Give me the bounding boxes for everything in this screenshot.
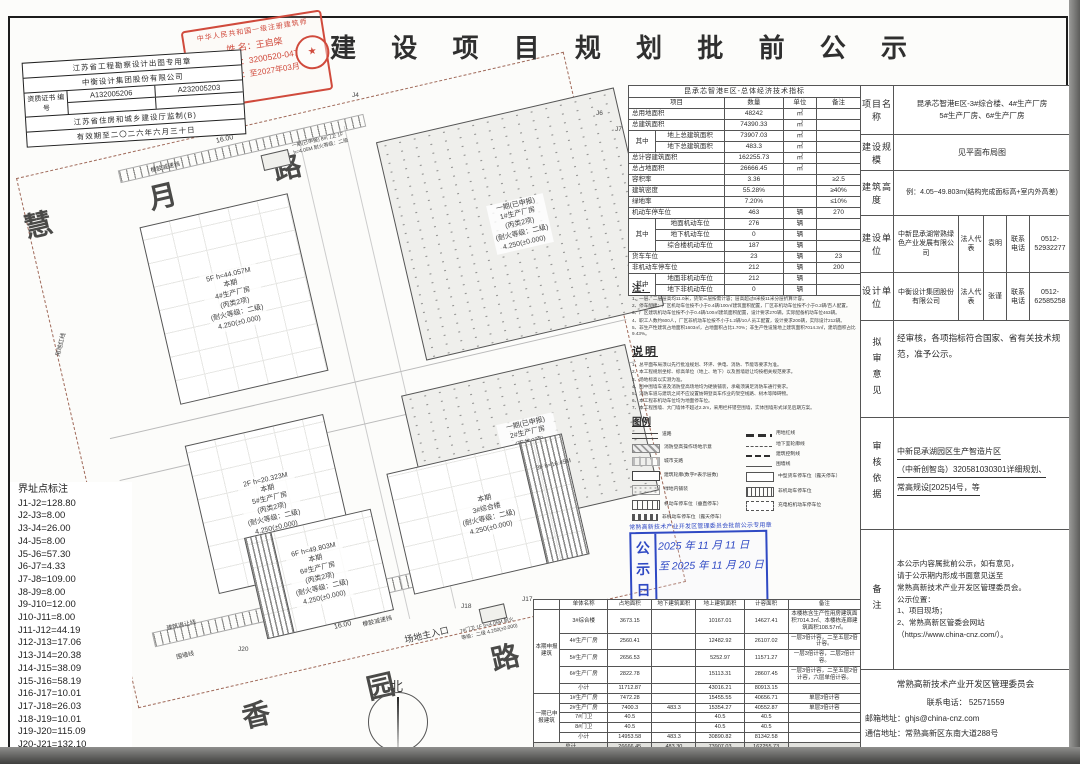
coord-item: J6-J7=4.33 <box>18 561 132 574</box>
row-label: 建筑密度 <box>629 186 725 197</box>
unit-name: 小计 <box>560 733 608 743</box>
north-arrow-icon <box>368 692 428 752</box>
remark <box>817 131 861 142</box>
legend-label: 机动车停车位（垂直停车） <box>664 502 722 508</box>
scan-edge-bottom <box>0 747 1080 764</box>
project-name-row: 项目名称 昆承芯智港E区-3#综合楼、4#生产厂房 5#生产厂房、6#生产厂房 <box>861 86 1070 135</box>
value: 11712.87 <box>608 683 652 693</box>
footer-mail: 邮箱地址：ghjs@china-cnz.com <box>865 711 1066 726</box>
col-header: 备注 <box>788 600 860 610</box>
designer-row: 设计单位 中衡设计集团股份有限公司 法人代表 张谨 联系电话 0512-6258… <box>861 273 1070 322</box>
description-line: 3、场地标高以实测为准。 <box>632 377 860 383</box>
height-label: 建筑高度 <box>861 171 894 215</box>
coords-title: 界址点标注 <box>18 484 132 497</box>
basis-value: 中新昆承湖园区生产智造片区（中新创智岛）320581030301详细规划、常高规… <box>894 418 1070 529</box>
row-label: 地面机动车位 <box>656 219 725 230</box>
value: 483.3 <box>652 703 696 713</box>
value: 40552.87 <box>744 703 788 713</box>
legend-item: 充电桩机动车停车位 <box>746 501 860 511</box>
remark-line: 2、常熟高新区管委会网站 <box>897 617 985 629</box>
unit <box>783 197 816 208</box>
description-line: 1、总平面布局须以先行批准规划、环评、供电、消防、节能等要求为准。 <box>632 362 860 368</box>
builder-rep-label: 法人代表 <box>959 216 984 272</box>
jpoint-marker: J17 <box>522 596 532 603</box>
note-line: 1、一层、二层层高均11.0米，货架三层按需计容；层高超过8米按11米分层折算计… <box>632 296 860 302</box>
note-line: 3、厂区建筑机动车位按不小于0.4辆/100㎡建筑面积配置，设计要求270辆，实… <box>632 310 860 316</box>
remark <box>817 142 861 153</box>
value: 55.28% <box>725 186 784 197</box>
coord-item: J9-J10=12.00 <box>18 599 132 612</box>
value <box>652 609 696 633</box>
unit: 辆 <box>783 208 816 219</box>
value <box>652 723 696 733</box>
value: 15113.31 <box>696 667 744 684</box>
legend-item: 道路 <box>632 431 746 439</box>
scale-value: 见平面布局图 <box>894 135 1070 171</box>
description-title: 说明 <box>632 343 860 359</box>
value: 7.20% <box>725 197 784 208</box>
col-header: 占地面积 <box>608 600 652 610</box>
group-label: 本期申报建筑 <box>534 609 560 693</box>
fire-legend-icon <box>632 444 660 453</box>
designer-tel-label: 联系电话 <box>1007 273 1030 321</box>
legend-item: 围墙线 <box>746 462 860 468</box>
value: 14953.58 <box>608 733 652 743</box>
jpoint-marker: J18 <box>461 603 471 610</box>
col-header: 单体名称 <box>560 600 608 610</box>
value: 5252.97 <box>696 650 744 667</box>
legend-item: 用地红线 <box>746 431 860 437</box>
opinion-row: 拟审意见 经审核，各项指标符合国家、省有关技术规范，准予公示。 <box>861 321 1070 417</box>
unit: 辆 <box>783 219 816 230</box>
legend-label: 围墙线 <box>776 462 790 468</box>
note-line: 4、职工人数约600人，厂区非机动车位按不小于1.2辆/10人员工配置，设计要求… <box>632 318 860 324</box>
jpoint-marker: J20 <box>238 646 248 653</box>
unit: ㎡ <box>783 120 816 131</box>
legend-item: 建筑控制线 <box>746 452 860 458</box>
notes-block: 注： 1、一层、二层层高均11.0米，货架三层按需计容；层高超过8米按11米分层… <box>632 281 860 412</box>
value: 3673.15 <box>608 609 652 633</box>
legend-label: 道路 <box>662 432 672 438</box>
cert-label: 资质证书 编号 <box>25 91 69 117</box>
remark <box>817 120 861 131</box>
parking2-legend-icon <box>632 514 658 521</box>
legend-label: 建筑轮廓(数字F表示层数) <box>664 473 718 479</box>
row-label: 综合楼机动车位 <box>656 241 725 252</box>
col-header: 数量 <box>725 98 784 109</box>
value: 40656.71 <box>744 693 788 703</box>
scale-row: 建设规模 见平面布局图 <box>861 135 1070 172</box>
unit: ㎡ <box>783 153 816 164</box>
row-group-label: 其中 <box>629 219 656 252</box>
value: 40.5 <box>608 723 652 733</box>
value: 2656.53 <box>608 650 652 667</box>
basement-legend-icon <box>746 446 772 447</box>
design-firm-stamp: 江苏省工程勘察设计出图专用章 中衡设计集团股份有限公司 资质证书 编号 A132… <box>22 49 247 147</box>
scale-label: 建设规模 <box>861 135 894 171</box>
unit: 辆 <box>783 230 816 241</box>
remark <box>788 733 860 743</box>
legend-item: 城市支路 <box>632 457 746 466</box>
legend-item: 中型货车停车位（露天停车） <box>746 472 860 482</box>
remark-line: 请于公示期内形成书面意见送至 <box>897 570 1003 582</box>
unit-name: 1#生产厂房 <box>560 693 608 703</box>
builder-tel: 0512-52932277 <box>1030 216 1070 272</box>
value: 12482.92 <box>696 633 744 650</box>
coord-item: J5-J6=57.30 <box>18 549 132 562</box>
value: 30890.82 <box>696 733 744 743</box>
basis-line: （中新创智岛）320581030301详细规划、 <box>897 464 1046 478</box>
basis-line: 中新昆承湖园区生产智造片区 <box>897 446 1001 460</box>
coord-item: J16-J17=10.01 <box>18 688 132 701</box>
value: 7400.3 <box>608 703 652 713</box>
col-header: 地下建筑面积 <box>652 600 696 610</box>
project-name-value: 昆承芯智港E区-3#综合楼、4#生产厂房 5#生产厂房、6#生产厂房 <box>894 86 1070 134</box>
legend-item: 消防登高操作场地示意 <box>632 444 746 453</box>
truck-legend-icon <box>746 472 774 482</box>
height-row: 建筑高度 例：4.05~49.803m(结构完成面标高+室内外高差) <box>861 171 1070 216</box>
remark <box>817 241 861 252</box>
builder-name: 中新昆承湖常熟绿色产业发展有限公司 <box>894 216 959 272</box>
row-label: 总建筑面积 <box>629 120 725 131</box>
legend-item: 地下室轮廓线 <box>746 442 860 448</box>
legend-item: 非机动车停车位 <box>746 487 860 497</box>
jpoint-marker: J4 <box>352 92 359 99</box>
control-legend-icon <box>746 455 772 458</box>
notes-title: 注： <box>632 281 860 294</box>
legend-label: 用地红线 <box>776 431 795 437</box>
col-header: 项目 <box>629 98 725 109</box>
remark <box>788 683 860 693</box>
designer-tel: 0512-62585258 <box>1030 273 1070 321</box>
value: 276 <box>725 219 784 230</box>
value: 483.3 <box>652 733 696 743</box>
unit <box>783 175 816 186</box>
unit: 辆 <box>783 241 816 252</box>
remark <box>817 230 861 241</box>
value: 7472.28 <box>608 693 652 703</box>
fence-legend-icon <box>746 466 772 467</box>
builder-rep: 袁明 <box>984 216 1007 272</box>
value: 26666.45 <box>725 164 784 175</box>
unit <box>783 186 816 197</box>
coord-item: J8-J9=8.00 <box>18 587 132 600</box>
description-line: 4、图中围墙车道及消防登高场地均为硬质铺装，承载须满足消防车通行要求。 <box>632 384 860 390</box>
unit: ㎡ <box>783 142 816 153</box>
unit: 辆 <box>783 263 816 274</box>
row-label: 地下机动车位 <box>656 230 725 241</box>
note-line: 5、非生产性建筑占地面积1603㎡，占地面积占比1.70%；非生产性设施地上建筑… <box>632 325 860 337</box>
value: 15455.55 <box>696 693 744 703</box>
designer-label: 设计单位 <box>861 273 894 321</box>
charge-legend-icon <box>746 501 774 511</box>
designer-name: 中衡设计集团股份有限公司 <box>894 273 959 321</box>
coord-item: J10-J11=8.00 <box>18 612 132 625</box>
unit: 辆 <box>783 252 816 263</box>
designer-rep-label: 法人代表 <box>959 273 984 321</box>
coord-item: J18-J19=10.01 <box>18 714 132 727</box>
opinion-label: 拟审意见 <box>861 321 894 416</box>
unit-name: 3#综合楼 <box>560 609 608 633</box>
coord-item: J3-J4=26.00 <box>18 523 132 536</box>
coord-item: J11-J12=44.19 <box>18 625 132 638</box>
unit-name: 6#生产厂房 <box>560 667 608 684</box>
group-label: 一期已申报建筑 <box>534 693 560 742</box>
coord-item: J1-J2=128.80 <box>18 498 132 511</box>
parking-legend-icon <box>632 500 660 510</box>
remark-line: 1、项目现场； <box>897 605 947 617</box>
unit-name: 8#门卫 <box>560 723 608 733</box>
remark <box>817 219 861 230</box>
legend-label: 非机动车停车位（露天停车） <box>662 515 724 521</box>
legend-label: 充电桩机动车停车位 <box>778 503 821 509</box>
value: 80913.15 <box>744 683 788 693</box>
row-label: 总占地面积 <box>629 164 725 175</box>
row-label: 地上总建筑面积 <box>656 131 725 142</box>
remark-line: 本公示内容属批前公示，如有意见， <box>897 558 1019 570</box>
col-header: 地上建筑面积 <box>696 600 744 610</box>
legend-label: 非机动车停车位 <box>778 489 812 495</box>
value: 483.3 <box>725 142 784 153</box>
value: 11571.27 <box>744 650 788 667</box>
jpoint-marker: J7 <box>615 126 622 133</box>
value: 212 <box>725 263 784 274</box>
row-group-label: 其中 <box>629 131 656 153</box>
legend-label: 建筑控制线 <box>776 452 800 458</box>
remark: 一层3倍计容，二层2倍计容。 <box>788 650 860 667</box>
coord-item: J2-J3=8.00 <box>18 510 132 523</box>
remark: 单层3倍计容 <box>788 693 860 703</box>
remark-row: 备注 本公示内容属批前公示，如有意见，请于公示期内形成书面意见送至常熟高新技术产… <box>861 530 1070 670</box>
value: 23 <box>725 252 784 263</box>
unit: ㎡ <box>783 164 816 175</box>
redline-legend-icon <box>746 434 772 437</box>
value: 28607.45 <box>744 667 788 684</box>
remark-line: （https://www.china-cnz.com/）。 <box>897 629 1008 641</box>
legend-label: 消防登高操作场地示意 <box>664 445 712 451</box>
remark: 单层3倍计容 <box>788 703 860 713</box>
value: 187 <box>725 241 784 252</box>
col-header: 备注 <box>817 98 861 109</box>
coord-item: J13-J14=20.38 <box>18 650 132 663</box>
green-legend-icon <box>632 485 660 495</box>
legend-label: 绿地内铺装 <box>664 487 688 493</box>
remark: ≥40% <box>817 186 861 197</box>
remark: 一层3倍计容，二至五层2倍计容，六层单倍计容。 <box>788 667 860 684</box>
scan-edge-right <box>1069 0 1080 764</box>
legend-item: 机动车停车位（垂直停车） <box>632 500 746 510</box>
value: 40.5 <box>696 723 744 733</box>
row-label: 地下总建筑面积 <box>656 142 725 153</box>
row-label: 机动车停车位 <box>629 208 725 219</box>
project-name-label: 项目名称 <box>861 86 894 134</box>
coord-item: J12-J13=17.06 <box>18 637 132 650</box>
scanned-notice-page: 慧 月 路 香 园 路 场地次入口 16.00 橡胶减速挡 场地主入口 16.0… <box>0 0 1080 764</box>
row-label: 总用地面积 <box>629 109 725 120</box>
unit-name: 7#门卫 <box>560 713 608 723</box>
value: 40.5 <box>744 723 788 733</box>
value: 26107.02 <box>744 633 788 650</box>
legend-block: 图例 道路消防登高操作场地示意城市支路建筑轮廓(数字F表示层数)绿地内铺装机动车… <box>632 414 860 526</box>
economic-indicators-table: 昆承芯智港E区-总体经济技术指标项目数量单位备注总用地面积48242㎡总建筑面积… <box>628 85 861 296</box>
legend-label: 城市支路 <box>664 459 683 465</box>
footer-org: 常熟高新技术产业开发区管理委员会 <box>865 676 1066 692</box>
basis-line: 常高规设[2025]4号，等 <box>897 482 980 496</box>
corner <box>534 600 560 610</box>
remark-line: 常熟高新技术产业开发区管理委员会。 <box>897 582 1026 594</box>
value: 463 <box>725 208 784 219</box>
basis-row: 审核依据 中新昆承湖园区生产智造片区（中新创智岛）320581030301详细规… <box>861 418 1070 530</box>
row-label: 非机动车停车位 <box>629 263 725 274</box>
coord-item: J19-J20=115.09 <box>18 726 132 739</box>
builder-tel-label: 联系电话 <box>1007 216 1030 272</box>
remark <box>817 153 861 164</box>
city-legend-icon <box>632 457 660 466</box>
boundary-coordinates: 界址点标注 J1-J2=128.80J2-J3=8.00J3-J4=26.00J… <box>10 482 132 764</box>
remark: 本楼栋含生产性用房建筑面积7014.3㎡、本楼栋连廊建筑面积108.57㎡。 <box>788 609 860 633</box>
unit: ㎡ <box>783 109 816 120</box>
value: 40.5 <box>696 713 744 723</box>
value: 10167.01 <box>696 609 744 633</box>
legend-label: 地下室轮廓线 <box>776 442 805 448</box>
page-title: 建 设 项 目 规 划 批 前 公 示 <box>330 28 830 65</box>
col-header: 计容面积 <box>744 600 788 610</box>
remark <box>788 713 860 723</box>
value <box>652 650 696 667</box>
footer-addr: 通信地址：常熟高新区东南大道288号 <box>865 726 1066 741</box>
value: 15354.27 <box>696 703 744 713</box>
value: 2822.78 <box>608 667 652 684</box>
unit-areas-table: 单体名称占地面积地下建筑面积地上建筑面积计容面积备注本期申报建筑3#综合楼367… <box>533 599 861 753</box>
row-label: 绿地率 <box>629 197 725 208</box>
remark <box>817 109 861 120</box>
unit-name: 小计 <box>560 683 608 693</box>
right-info-panel: 项目名称 昆承芯智港E区-3#综合楼、4#生产厂房 5#生产厂房、6#生产厂房 … <box>860 85 1071 748</box>
description-line: 6、本工程非机动车位均为地面停车位。 <box>632 398 860 404</box>
remark: ≥2.5 <box>817 175 861 186</box>
col-header: 单位 <box>783 98 816 109</box>
value: 40.5 <box>744 713 788 723</box>
coord-item: J7-J8=109.00 <box>18 574 132 587</box>
coord-item: J4-J5=8.00 <box>18 536 132 549</box>
remark: 270 <box>817 208 861 219</box>
value: 0 <box>725 230 784 241</box>
remark: 一层3倍计容，二至五层2倍计容。 <box>788 633 860 650</box>
legend-title: 图例 <box>632 414 860 428</box>
remark <box>817 164 861 175</box>
description-line: 7、本工程围墙、大门墙体不超过2.2m，采用栏杆镂空围墙，实体围墙形式详见后期方… <box>632 405 860 411</box>
value: 40.5 <box>608 713 652 723</box>
legend-item: 绿地内铺装 <box>632 485 746 495</box>
value: 162255.73 <box>725 153 784 164</box>
description-line: 2、本工程规划坐标、标高单位（地上、地下）以及围墙退让均按相关规范要求。 <box>632 369 860 375</box>
value <box>652 683 696 693</box>
legend-item: 建筑轮廓(数字F表示层数) <box>632 471 746 481</box>
remark: 200 <box>817 263 861 274</box>
footer-contact: 常熟高新技术产业开发区管理委员会 联系电话： 52571559 邮箱地址：ghj… <box>861 670 1070 747</box>
opinion-value: 经审核，各项指标符合国家、省有关技术规范，准予公示。 <box>894 321 1070 416</box>
jpoint-marker: J6 <box>596 110 603 117</box>
value: 81342.58 <box>744 733 788 743</box>
value: 73907.03 <box>725 131 784 142</box>
legend-label: 中型货车停车位（露天停车） <box>778 474 840 480</box>
value <box>652 713 696 723</box>
description-line: 5、消防车道与建筑之间不应设置妨碍登高车作业的架空线路、树木等障碍物。 <box>632 391 860 397</box>
value <box>652 633 696 650</box>
value <box>652 667 696 684</box>
outline-legend-icon <box>632 471 660 481</box>
remark-label: 备注 <box>861 530 894 669</box>
unit-name: 4#生产厂房 <box>560 633 608 650</box>
basis-label: 审核依据 <box>861 418 894 529</box>
value: 2560.41 <box>608 633 652 650</box>
remark-value: 本公示内容属批前公示，如有意见，请于公示期内形成书面意见送至常熟高新技术产业开发… <box>894 530 1070 669</box>
note-line: 2、停车配建：厂区机动车位按不小于0.4辆/100㎡建筑面积配置，厂区非机动车位… <box>632 303 860 309</box>
remark-line: 公示位置： <box>897 594 935 606</box>
bike-legend-icon <box>746 487 774 497</box>
row-label: 容积率 <box>629 175 725 186</box>
value: 43016.21 <box>696 683 744 693</box>
unit-name: 5#生产厂房 <box>560 650 608 667</box>
value: 14627.41 <box>744 609 788 633</box>
road-legend-icon <box>632 433 658 439</box>
unit-name: 2#生产厂房 <box>560 703 608 713</box>
remark: ≤10% <box>817 197 861 208</box>
table-title: 昆承芯智港E区-总体经济技术指标 <box>629 86 861 98</box>
builder-row: 建设单位 中新昆承湖常熟绿色产业发展有限公司 法人代表 袁明 联系电话 0512… <box>861 216 1070 273</box>
row-label: 总计容建筑面积 <box>629 153 725 164</box>
coord-item: J14-J15=38.09 <box>18 663 132 676</box>
value <box>652 693 696 703</box>
value: 48242 <box>725 109 784 120</box>
footer-row: 常熟高新技术产业开发区管理委员会 联系电话： 52571559 邮箱地址：ghj… <box>861 670 1070 747</box>
value: 3.36 <box>725 175 784 186</box>
designer-rep: 张谨 <box>984 273 1007 321</box>
unit: ㎡ <box>783 131 816 142</box>
builder-label: 建设单位 <box>861 216 894 272</box>
value: 74390.33 <box>725 120 784 131</box>
row-label: 货车车位 <box>629 252 725 263</box>
coord-item: J17-J18=26.03 <box>18 701 132 714</box>
remark <box>788 723 860 733</box>
remark: 23 <box>817 252 861 263</box>
height-value: 例：4.05~49.803m(结构完成面标高+室内外高差) <box>894 171 1070 215</box>
coord-item: J15-J16=58.19 <box>18 676 132 689</box>
footer-tel: 联系电话： 52571559 <box>865 695 1066 710</box>
